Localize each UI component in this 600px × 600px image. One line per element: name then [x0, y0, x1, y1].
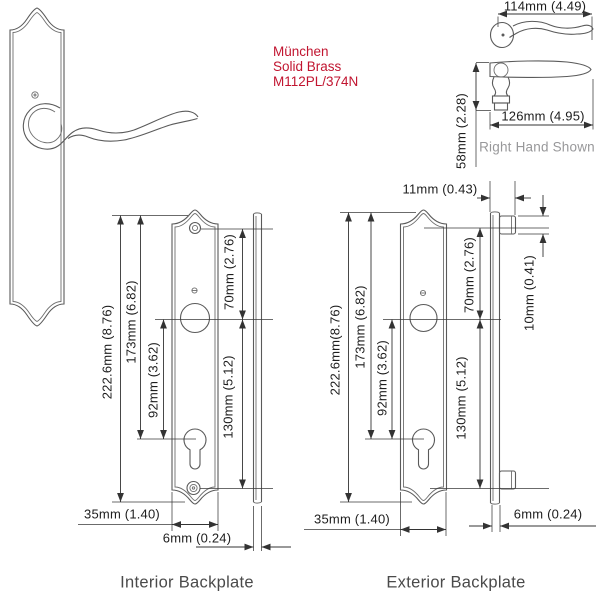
dim-handle-length: 126mm (4.95) — [501, 109, 584, 124]
spec-sheet-page: München Solid Brass M112PL/374N 114mm (4… — [0, 0, 600, 600]
product-name: München — [273, 44, 329, 59]
dim-exterior-boss-height: 10mm (0.41) — [522, 255, 537, 331]
interior-top-screw-hole — [190, 223, 201, 234]
dim-handle-height: 58mm (2.28) — [454, 93, 469, 169]
interior-backplate-caption: Interior Backplate — [120, 574, 254, 593]
exterior-euro-cylinder-hole — [413, 429, 435, 469]
dim-interior-screw-to-hub: 70mm (2.76) — [222, 234, 237, 310]
exterior-dimension-lines — [304, 195, 596, 530]
dim-interior-overall-height: 222.6mm (8.76) — [100, 305, 115, 400]
exterior-backplate-caption: Exterior Backplate — [386, 574, 525, 593]
overview-screw-hole — [32, 92, 38, 98]
exterior-side-profile — [491, 212, 516, 504]
dim-interior-width: 35mm (1.40) — [84, 507, 160, 522]
exterior-bottom-boss — [500, 471, 516, 489]
product-material: Solid Brass — [273, 59, 341, 74]
interior-hub-hole — [181, 304, 210, 333]
interior-side-profile — [254, 213, 262, 503]
exterior-top-boss — [500, 216, 516, 234]
dim-exterior-hub-to-bottom-screw: 130mm (5.12) — [454, 356, 469, 439]
dim-interior-top-to-cylinder: 173mm (6.82) — [124, 280, 139, 363]
exterior-backplate-drawing — [304, 181, 596, 536]
handle-hub-side — [494, 63, 508, 77]
dim-exterior-thickness: 6mm (0.24) — [514, 507, 582, 522]
dim-exterior-screw-to-hub: 70mm (2.76) — [462, 237, 477, 313]
exterior-hub-hole — [410, 305, 437, 332]
hand-orientation-note: Right Hand Shown — [479, 140, 595, 155]
interior-bottom-screw-hole — [187, 482, 200, 495]
dim-exterior-hub-to-cylinder: 92mm (3.62) — [375, 340, 390, 416]
dim-handle-top-width: 114mm (4.49) — [504, 0, 586, 14]
dim-interior-hub-to-cylinder: 92mm (3.62) — [146, 342, 161, 418]
dim-exterior-boss-projection: 11mm (0.43) — [403, 182, 478, 197]
dim-exterior-overall-height: 222.6mm(8.76) — [328, 305, 343, 396]
product-model: M112PL/374N — [273, 74, 358, 89]
dim-interior-hub-to-bottom-screw: 130mm (5.12) — [221, 355, 236, 438]
interior-euro-cylinder-hole — [184, 429, 206, 469]
dim-exterior-top-to-cylinder: 173mm (6.82) — [353, 285, 368, 368]
dim-exterior-width: 35mm (1.40) — [314, 512, 390, 527]
dim-interior-thickness: 6mm (0.24) — [163, 531, 231, 546]
handle-top-view — [491, 14, 594, 48]
handle-overview-drawing — [10, 8, 198, 326]
